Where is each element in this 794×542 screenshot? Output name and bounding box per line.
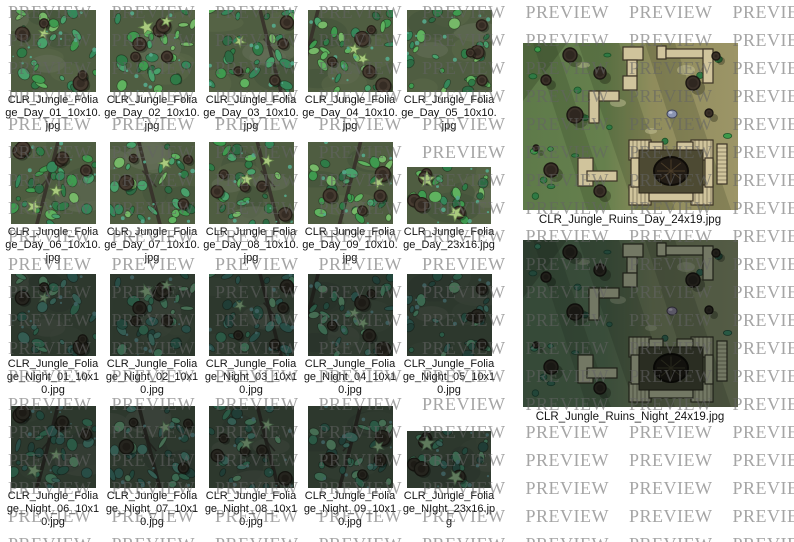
preview-watermark-text: PREVIEW [733, 338, 794, 359]
preview-watermark-text: PREVIEW [733, 506, 794, 527]
asset-filename: CLR_Jungle_Foliage_Day_07_10x10.jpg [104, 226, 200, 265]
asset-preview-sheet: CLR_Jungle_Foliage_Day_01_10x10.jpgCLR_J… [0, 0, 794, 542]
thumbnail-frame [407, 274, 492, 356]
asset-filename: CLR_Jungle_Foliage_Day_03_10x10.jpg [203, 94, 299, 133]
ruins-map-preview[interactable] [523, 43, 738, 210]
map-tile-thumbnail[interactable] [209, 406, 294, 488]
large-preview-column: CLR_Jungle_Ruins_Day_24x19.jpgCLR_Jungle… [522, 43, 738, 437]
asset-filename: CLR_Jungle_Foliage_Day_04_10x10.jpg [302, 94, 398, 133]
map-tile-thumbnail[interactable] [11, 142, 96, 224]
map-tile-thumbnail[interactable] [308, 10, 393, 92]
map-tile-thumbnail[interactable] [308, 142, 393, 224]
preview-watermark-text: PREVIEW [733, 170, 794, 191]
asset-thumbnail-cell: CLR_Jungle_Foliage_Night_04_10x10.jpg [301, 274, 399, 397]
asset-thumbnail-cell: CLR_Jungle_Foliage_Night_08_10x10.jpg [202, 406, 300, 529]
thumbnail-frame [308, 274, 393, 356]
preview-watermark-text: PREVIEW [112, 534, 196, 542]
map-tile-thumbnail[interactable] [11, 406, 96, 488]
asset-thumbnail-cell: CLR_Jungle_Foliage_Day_02_10x10.jpg [103, 10, 201, 133]
asset-filename: CLR_Jungle_Foliage_Night_05_10x10.jpg [401, 358, 497, 397]
map-tile-thumbnail[interactable] [110, 406, 195, 488]
asset-thumbnail-cell: CLR_Jungle_Foliage_Night_05_10x10.jpg [400, 274, 498, 397]
asset-thumbnail-cell: CLR_Jungle_Foliage_Night_01_10x10.jpg [4, 274, 102, 397]
asset-filename: CLR_Jungle_Foliage_Night_01_10x10.jpg [5, 358, 101, 397]
asset-thumbnail-cell: CLR_Jungle_Foliage_Night_03_10x10.jpg [202, 274, 300, 397]
thumbnail-frame [11, 10, 96, 92]
preview-watermark-text: PREVIEW [629, 478, 713, 499]
asset-filename: CLR_Jungle_Foliage_Day_01_10x10.jpg [5, 94, 101, 133]
thumbnail-frame [407, 10, 492, 92]
preview-watermark-text: PREVIEW [733, 478, 794, 499]
asset-filename: CLR_Jungle_Foliage_Night_02_10x10.jpg [104, 358, 200, 397]
map-tile-thumbnail[interactable] [110, 10, 195, 92]
map-tile-thumbnail[interactable] [11, 10, 96, 92]
thumbnail-grid: CLR_Jungle_Foliage_Day_01_10x10.jpgCLR_J… [4, 10, 498, 529]
large-preview-item: CLR_Jungle_Ruins_Night_24x19.jpg [522, 240, 738, 424]
large-preview-item: CLR_Jungle_Ruins_Day_24x19.jpg [522, 43, 738, 227]
asset-thumbnail-cell: CLR_Jungle_Foliage_Day_07_10x10.jpg [103, 142, 201, 265]
asset-thumbnail-cell: CLR_Jungle_Foliage_NIght_23x16.jpg [400, 406, 498, 529]
asset-thumbnail-cell: CLR_Jungle_Foliage_Day_23x16.jpg [400, 142, 498, 265]
thumbnail-frame [407, 406, 491, 488]
asset-thumbnail-cell: CLR_Jungle_Foliage_Night_07_10x10.jpg [103, 406, 201, 529]
map-tile-thumbnail[interactable] [110, 274, 195, 356]
thumbnail-frame [110, 274, 195, 356]
map-tile-thumbnail[interactable] [407, 167, 491, 224]
thumbnail-frame [110, 10, 195, 92]
asset-thumbnail-cell: CLR_Jungle_Foliage_Day_01_10x10.jpg [4, 10, 102, 133]
preview-watermark-text: PREVIEW [733, 310, 794, 331]
asset-filename: CLR_Jungle_Ruins_Day_24x19.jpg [539, 213, 721, 227]
preview-watermark-text: PREVIEW [733, 422, 794, 443]
asset-thumbnail-cell: CLR_Jungle_Foliage_Day_05_10x10.jpg [400, 10, 498, 133]
preview-watermark-text: PREVIEW [733, 58, 794, 79]
map-tile-thumbnail[interactable] [407, 431, 491, 488]
preview-watermark-text: PREVIEW [319, 534, 403, 542]
preview-watermark-text: PREVIEW [733, 254, 794, 275]
map-tile-thumbnail[interactable] [308, 274, 393, 356]
preview-watermark-text: PREVIEW [733, 198, 794, 219]
thumbnail-frame [209, 274, 294, 356]
preview-watermark-text: PREVIEW [8, 534, 92, 542]
asset-filename: CLR_Jungle_Foliage_Night_03_10x10.jpg [203, 358, 299, 397]
preview-watermark-text: PREVIEW [733, 86, 794, 107]
asset-thumbnail-cell: CLR_Jungle_Foliage_Night_02_10x10.jpg [103, 274, 201, 397]
preview-watermark-text: PREVIEW [733, 366, 794, 387]
asset-thumbnail-cell: CLR_Jungle_Foliage_Night_09_10x10.jpg [301, 406, 399, 529]
asset-filename: CLR_Jungle_Foliage_Night_06_10x10.jpg [5, 490, 101, 529]
preview-watermark-text: PREVIEW [733, 30, 794, 51]
asset-filename: CLR_Jungle_Foliage_Night_08_10x10.jpg [203, 490, 299, 529]
asset-thumbnail-cell: CLR_Jungle_Foliage_Day_08_10x10.jpg [202, 142, 300, 265]
preview-watermark-text: PREVIEW [215, 534, 299, 542]
preview-watermark-text: PREVIEW [526, 478, 610, 499]
preview-watermark-text: PREVIEW [526, 534, 610, 542]
preview-watermark-text: PREVIEW [629, 506, 713, 527]
preview-watermark-text: PREVIEW [526, 450, 610, 471]
asset-filename: CLR_Jungle_Foliage_Day_05_10x10.jpg [401, 94, 497, 133]
map-tile-thumbnail[interactable] [209, 10, 294, 92]
thumbnail-frame [308, 10, 393, 92]
preview-watermark-text: PREVIEW [733, 450, 794, 471]
thumbnail-frame [11, 406, 96, 488]
thumbnail-frame [308, 142, 393, 224]
asset-filename: CLR_Jungle_Ruins_Night_24x19.jpg [536, 410, 725, 424]
preview-watermark-text: PREVIEW [733, 394, 794, 415]
asset-filename: CLR_Jungle_Foliage_Night_04_10x10.jpg [302, 358, 398, 397]
preview-watermark-text: PREVIEW [526, 2, 610, 23]
map-tile-thumbnail[interactable] [110, 142, 195, 224]
map-tile-thumbnail[interactable] [209, 274, 294, 356]
map-tile-thumbnail[interactable] [308, 406, 393, 488]
thumbnail-frame [11, 142, 96, 224]
asset-thumbnail-cell: CLR_Jungle_Foliage_Day_04_10x10.jpg [301, 10, 399, 133]
preview-watermark-text: PREVIEW [526, 506, 610, 527]
thumbnail-frame [110, 406, 195, 488]
asset-thumbnail-cell: CLR_Jungle_Foliage_Night_06_10x10.jpg [4, 406, 102, 529]
thumbnail-frame [308, 406, 393, 488]
preview-watermark-text: PREVIEW [629, 450, 713, 471]
map-tile-thumbnail[interactable] [209, 142, 294, 224]
thumbnail-frame [209, 406, 294, 488]
map-tile-thumbnail[interactable] [407, 10, 492, 92]
asset-thumbnail-cell: CLR_Jungle_Foliage_Day_06_10x10.jpg [4, 142, 102, 265]
thumbnail-frame [209, 142, 294, 224]
preview-watermark-text: PREVIEW [733, 114, 794, 135]
asset-filename: CLR_Jungle_Foliage_Day_02_10x10.jpg [104, 94, 200, 133]
thumbnail-frame [110, 142, 195, 224]
asset-filename: CLR_Jungle_Foliage_Day_23x16.jpg [401, 226, 497, 252]
preview-watermark-text: PREVIEW [422, 534, 506, 542]
ruins-map-preview[interactable] [523, 240, 738, 407]
asset-filename: CLR_Jungle_Foliage_Night_09_10x10.jpg [302, 490, 398, 529]
thumbnail-frame [209, 10, 294, 92]
preview-watermark-text: PREVIEW [733, 534, 794, 542]
asset-filename: CLR_Jungle_Foliage_Day_09_10x10.jpg [302, 226, 398, 265]
preview-watermark-text: PREVIEW [733, 282, 794, 303]
thumbnail-frame [407, 142, 491, 224]
preview-watermark-text: PREVIEW [629, 2, 713, 23]
asset-filename: CLR_Jungle_Foliage_NIght_23x16.jpg [401, 490, 497, 529]
preview-watermark-text: PREVIEW [733, 142, 794, 163]
asset-thumbnail-cell: CLR_Jungle_Foliage_Day_03_10x10.jpg [202, 10, 300, 133]
asset-filename: CLR_Jungle_Foliage_Night_07_10x10.jpg [104, 490, 200, 529]
asset-filename: CLR_Jungle_Foliage_Day_08_10x10.jpg [203, 226, 299, 265]
asset-filename: CLR_Jungle_Foliage_Day_06_10x10.jpg [5, 226, 101, 265]
preview-watermark-text: PREVIEW [733, 2, 794, 23]
thumbnail-frame [11, 274, 96, 356]
map-tile-thumbnail[interactable] [11, 274, 96, 356]
preview-watermark-text: PREVIEW [733, 226, 794, 247]
preview-watermark-text: PREVIEW [629, 534, 713, 542]
asset-thumbnail-cell: CLR_Jungle_Foliage_Day_09_10x10.jpg [301, 142, 399, 265]
map-tile-thumbnail[interactable] [407, 274, 492, 356]
